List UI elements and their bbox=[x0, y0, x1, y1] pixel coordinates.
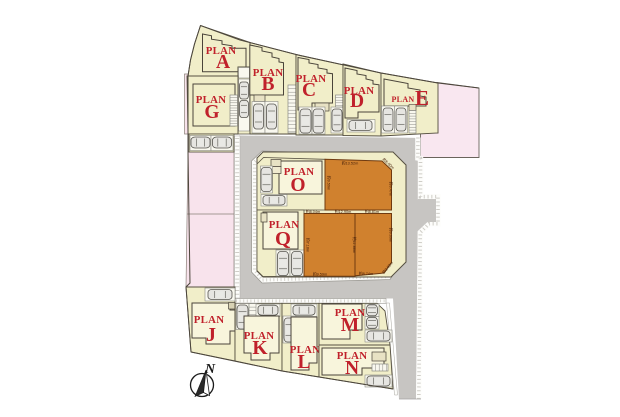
svg-text:約11.88m: 約11.88m bbox=[352, 237, 357, 253]
svg-text:G: G bbox=[204, 102, 219, 123]
svg-text:M: M bbox=[341, 315, 359, 336]
svg-text:A: A bbox=[216, 52, 230, 73]
svg-text:B: B bbox=[261, 74, 274, 95]
svg-text:D: D bbox=[350, 91, 364, 112]
svg-text:約12.90m: 約12.90m bbox=[335, 209, 351, 214]
svg-text:約9.59m: 約9.59m bbox=[326, 176, 331, 190]
svg-text:K: K bbox=[252, 338, 268, 359]
svg-text:N: N bbox=[204, 362, 216, 377]
svg-text:約7.18m: 約7.18m bbox=[305, 238, 310, 252]
svg-text:O: O bbox=[290, 175, 305, 196]
svg-text:N: N bbox=[345, 358, 359, 379]
svg-text:約9.09m: 約9.09m bbox=[389, 228, 394, 242]
svg-text:PLAN: PLAN bbox=[392, 95, 415, 104]
svg-text:約8.04m: 約8.04m bbox=[306, 209, 320, 214]
svg-text:約9.59m: 約9.59m bbox=[313, 271, 327, 276]
svg-text:約8.74m: 約8.74m bbox=[359, 271, 373, 276]
svg-text:L: L bbox=[297, 352, 310, 373]
svg-text:C: C bbox=[302, 80, 316, 101]
svg-text:約9.47m: 約9.47m bbox=[389, 182, 394, 196]
svg-text:J: J bbox=[206, 324, 216, 346]
svg-text:E: E bbox=[415, 86, 429, 110]
svg-text:約8.81m: 約8.81m bbox=[365, 209, 379, 214]
svg-text:約13.52m: 約13.52m bbox=[342, 160, 358, 165]
svg-text:Q: Q bbox=[275, 228, 291, 250]
